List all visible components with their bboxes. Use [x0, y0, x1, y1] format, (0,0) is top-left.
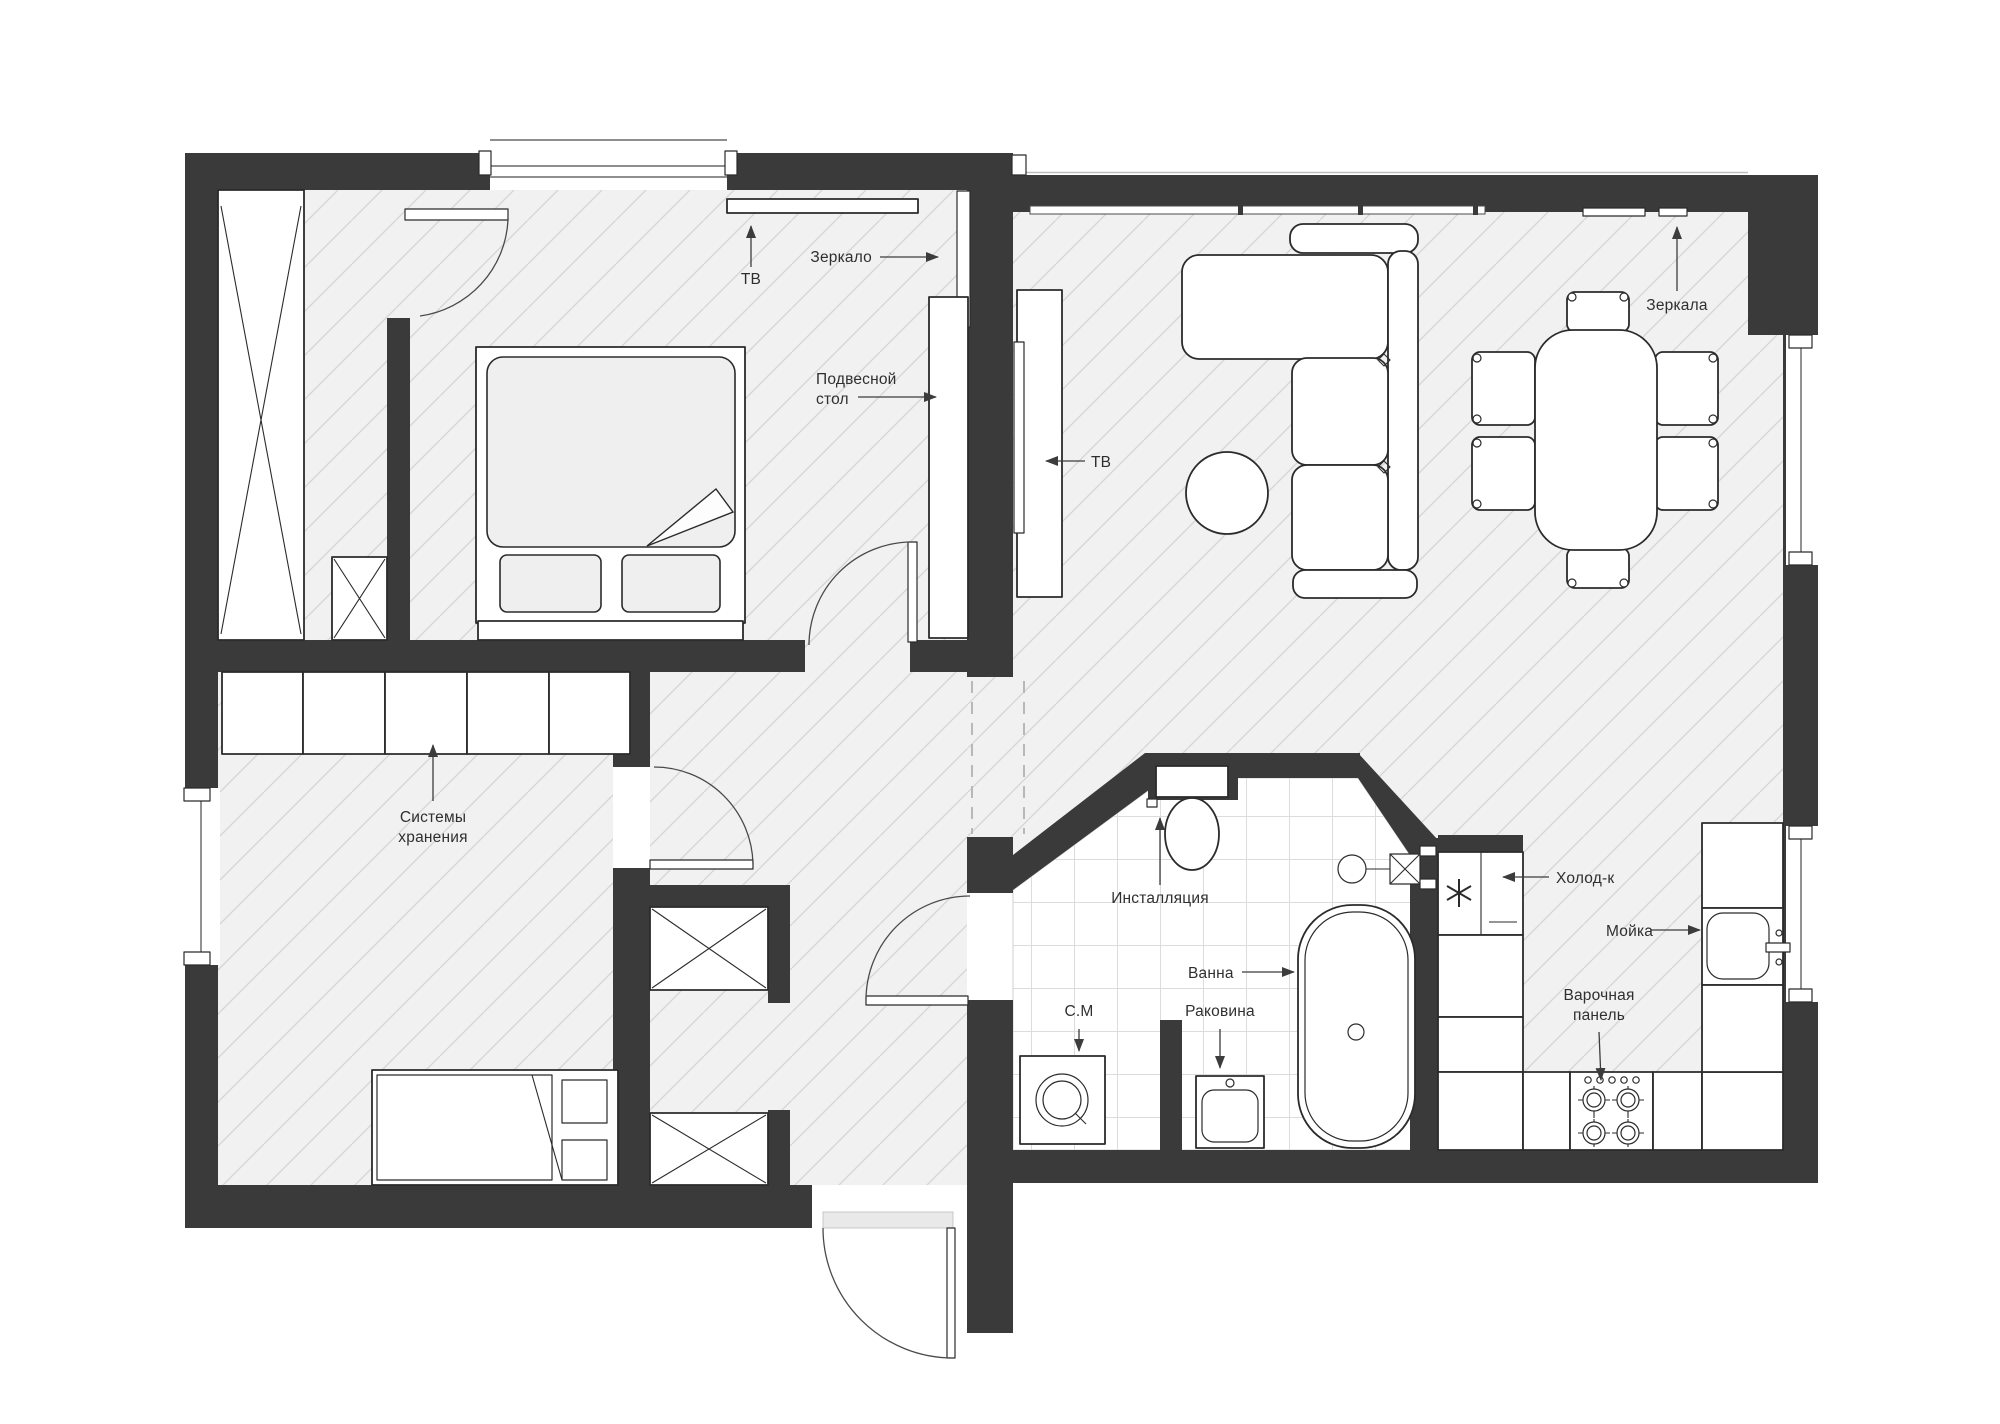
kitchen-right-window [1786, 826, 1818, 1002]
wall-mirrors [1583, 208, 1687, 216]
living-mirrors-label: Зеркала [1646, 297, 1708, 314]
hanging-desk-label: стол [816, 391, 849, 408]
bathtub [1298, 905, 1415, 1148]
storage-label: хранения [398, 829, 467, 846]
wall-bedroom-living [967, 153, 1013, 677]
dining-chair [1567, 548, 1629, 588]
entry-threshold [823, 1212, 953, 1228]
wardrobe [218, 190, 304, 640]
floor-plan: ТВ Зеркало Подвесной стол ТВ Зеркала Сис… [0, 0, 2000, 1424]
closet-upper [650, 907, 768, 990]
washer-label: С.М [1064, 1003, 1093, 1020]
wall-bedroom-south [185, 640, 805, 672]
wall-closet-right-bottom [768, 1110, 790, 1185]
bathroom-sink [1196, 1076, 1264, 1148]
wall-left [185, 153, 218, 1228]
wall-closet-top [630, 885, 790, 907]
bedroom-mirror-label: Зеркало [810, 249, 872, 266]
kitchen-cabinet [1523, 1072, 1570, 1150]
bath-partition [1160, 1020, 1182, 1150]
bedroom-tv-label: ТВ [741, 271, 761, 288]
bathtub-label: Ванна [1188, 965, 1234, 982]
cooktop-label: панель [1573, 1007, 1625, 1024]
cooktop-label: Варочная [1563, 987, 1634, 1004]
wall-bottom-left [185, 1185, 812, 1228]
bedroom-tv-panel [727, 199, 918, 213]
dining-chair [1472, 352, 1535, 425]
closet-lower [650, 1113, 768, 1185]
hanging-desk-label: Подвесной [816, 371, 897, 388]
wall-bottom-right [1013, 1150, 1818, 1183]
wall-bedroom-nook [387, 318, 410, 643]
kitchen-cabinet [1702, 1072, 1783, 1150]
storage-systems-row [222, 672, 630, 754]
living-right-window [1786, 335, 1818, 565]
dining-chair [1472, 437, 1535, 510]
double-bed [476, 347, 745, 640]
installation-label: Инсталляция [1111, 890, 1209, 907]
dining-chair [1655, 352, 1718, 425]
wall-bath-left-lower [967, 1000, 1013, 1333]
cooktop [1570, 1072, 1653, 1150]
kitchen-sink-label: Мойка [1606, 923, 1653, 940]
kitchen-cabinet [1438, 1017, 1523, 1072]
kids-left-window [182, 788, 220, 965]
passage-floor [967, 677, 1013, 837]
hanging-desk [929, 297, 968, 638]
wall-bedroom-south-stub [910, 640, 1013, 672]
washing-machine [1020, 1056, 1105, 1144]
fridge-label: Холод-к [1556, 870, 1614, 887]
kitchen-cabinet [1438, 1072, 1523, 1150]
entrance-door [823, 1228, 955, 1358]
kitchen-cabinet [1702, 823, 1783, 908]
storage-label: Системы [400, 809, 466, 826]
kitchen-cabinet [1653, 1072, 1702, 1150]
single-bed [372, 1070, 618, 1185]
wall-closet-right-top [768, 885, 790, 1003]
fridge [1438, 852, 1523, 935]
kitchen-cabinet [1702, 985, 1783, 1072]
wall-fridge-cap [1438, 835, 1523, 852]
nook-cabinet [332, 557, 387, 640]
kitchen-cabinet [1438, 935, 1523, 1017]
floor-plan-drawing: ТВ Зеркало Подвесной стол ТВ Зеркала Сис… [0, 0, 2000, 1424]
coffee-table [1186, 452, 1268, 534]
kitchen-sink-unit [1702, 908, 1790, 985]
dining-chair [1567, 292, 1629, 332]
bedroom-window [479, 126, 737, 190]
living-tv-unit [1014, 290, 1062, 597]
wall-bath-left-upper [967, 837, 1013, 893]
bath-sink-label: Раковина [1185, 1003, 1255, 1020]
dining-chair [1655, 437, 1718, 510]
dining-table [1535, 330, 1657, 550]
living-tv-label: ТВ [1091, 454, 1111, 471]
